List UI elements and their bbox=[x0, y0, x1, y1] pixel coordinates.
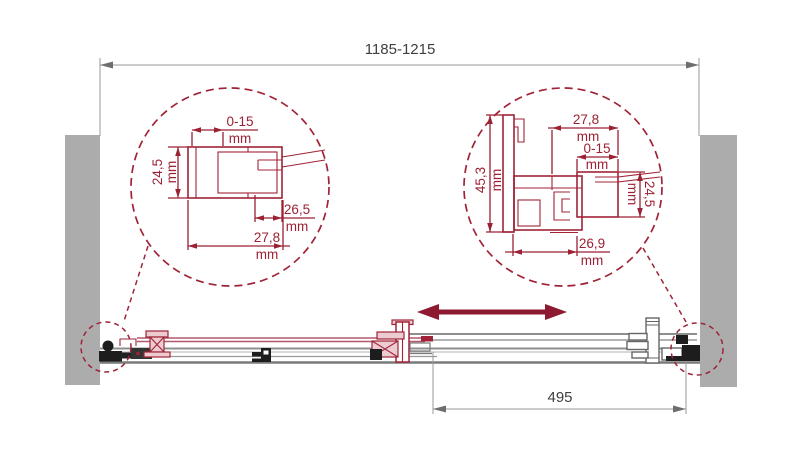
frame-profile-section bbox=[503, 115, 514, 232]
frame-hook bbox=[514, 119, 524, 142]
right-frame-height-unit: mm bbox=[489, 169, 504, 192]
slide-direction-arrow bbox=[417, 304, 567, 320]
left-profile-height-unit: mm bbox=[164, 161, 179, 184]
left-detail-view: 0-15 mm 24,5 mm 26,5 mm 27,8 mm bbox=[150, 114, 325, 262]
right-adjust-range-label: 0-15 bbox=[583, 141, 610, 156]
door-handle-part bbox=[421, 336, 433, 342]
right-wall-bracket bbox=[662, 335, 700, 361]
roller-cap bbox=[146, 331, 168, 337]
bottom-rail-section bbox=[514, 176, 582, 230]
right-frame-height-label: 45,3 bbox=[473, 167, 488, 193]
door-guide-hook bbox=[120, 339, 136, 346]
panel-clamp bbox=[252, 348, 271, 362]
glass-panel-line bbox=[282, 150, 325, 157]
overall-width-label: 1185-1215 bbox=[365, 41, 436, 58]
roller-base bbox=[144, 352, 170, 357]
left-inner-depth-label: 26,5 bbox=[284, 202, 310, 217]
adjustment-sleeve-section bbox=[577, 172, 618, 217]
dim-arrow-left bbox=[100, 62, 113, 69]
technical-drawing: 1185-1215 bbox=[0, 0, 800, 450]
center-roller-assembly bbox=[370, 320, 433, 362]
glass-panel-line bbox=[282, 160, 325, 167]
left-adjust-range-label: 0-15 bbox=[226, 114, 253, 129]
page: 1185-1215 bbox=[0, 0, 800, 450]
left-inner-depth-unit: mm bbox=[286, 219, 309, 234]
dim-arrow-right bbox=[673, 406, 686, 413]
right-profile-width-label: 27,8 bbox=[573, 112, 599, 127]
right-adjust-range-unit: mm bbox=[586, 157, 609, 172]
wall-profile-section bbox=[188, 147, 282, 198]
wall-left bbox=[65, 135, 100, 385]
fixed-panel-profile bbox=[627, 318, 659, 363]
left-wall-bracket bbox=[99, 331, 170, 362]
overall-width-dimension: 1185-1215 bbox=[100, 41, 699, 136]
right-inner-depth-unit: mm bbox=[581, 253, 604, 268]
left-profile-height-label: 24,5 bbox=[150, 159, 165, 185]
wall-right bbox=[700, 135, 737, 387]
right-detail-view: 27,8 mm 0-15 mm 45,3 mm mm 24,5 26,9 mm bbox=[473, 112, 660, 268]
adjustment-sleeve-section bbox=[218, 152, 277, 193]
left-profile-width-label: 27,8 bbox=[254, 230, 280, 245]
right-profile-height-label: 24,5 bbox=[642, 181, 657, 207]
right-inner-depth-label: 26,9 bbox=[579, 236, 605, 251]
dim-arrow-left bbox=[433, 406, 446, 413]
left-detail-leader bbox=[124, 246, 148, 321]
dim-arrow-right bbox=[686, 62, 699, 69]
left-adjust-range-unit: mm bbox=[229, 131, 252, 146]
glass-clip-section bbox=[554, 192, 570, 220]
slide-width-label: 495 bbox=[547, 389, 572, 406]
right-profile-height-unit: mm bbox=[625, 183, 640, 206]
right-detail-leader bbox=[643, 248, 686, 322]
left-profile-width-unit: mm bbox=[256, 247, 279, 262]
